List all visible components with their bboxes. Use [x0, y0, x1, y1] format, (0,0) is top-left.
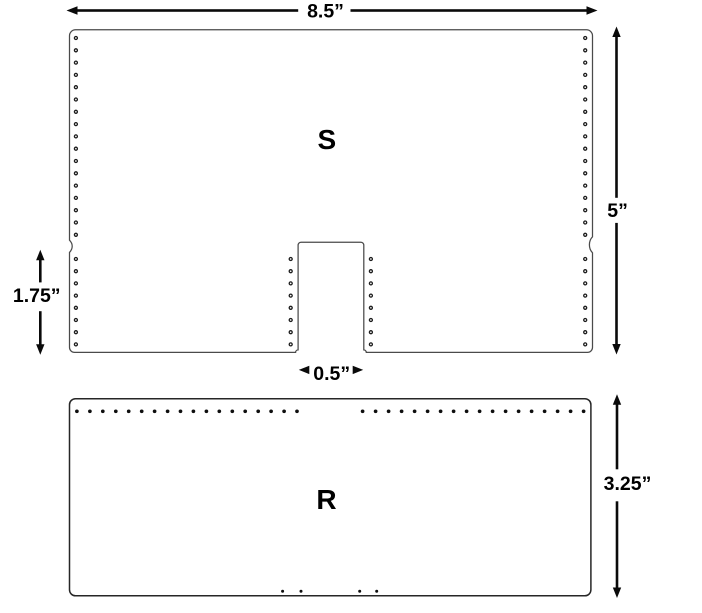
svg-text:S: S [317, 124, 336, 155]
svg-text:5”: 5” [607, 200, 628, 222]
svg-text:R: R [316, 484, 336, 515]
svg-text:0.5”: 0.5” [313, 363, 350, 385]
svg-text:8.5”: 8.5” [307, 1, 344, 23]
svg-text:3.25”: 3.25” [604, 473, 652, 495]
svg-text:1.75”: 1.75” [13, 285, 61, 307]
